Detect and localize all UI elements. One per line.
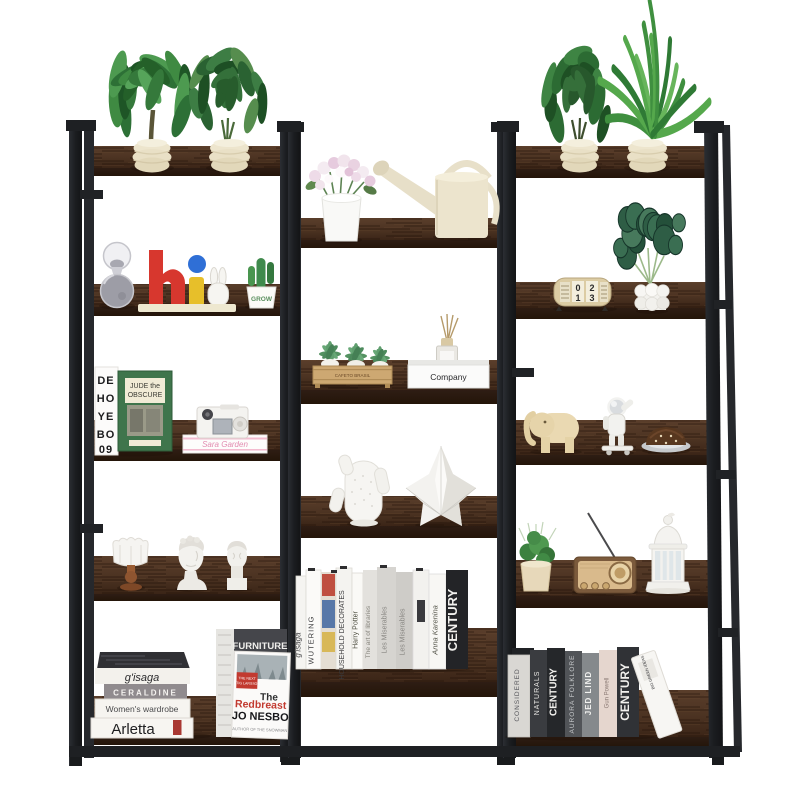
svg-text:CERALDINE: CERALDINE <box>113 689 178 698</box>
svg-text:g'isaga: g'isaga <box>125 672 160 684</box>
svg-text:CONSIDERED: CONSIDERED <box>514 668 521 721</box>
svg-text:1: 1 <box>575 293 580 303</box>
svg-text:JO NESBO: JO NESBO <box>232 710 290 724</box>
svg-text:BO: BO <box>97 429 116 441</box>
svg-text:JED LIND: JED LIND <box>584 671 593 715</box>
svg-text:Sara Garden: Sara Garden <box>202 440 248 449</box>
svg-text:The art of libraries: The art of libraries <box>365 605 372 658</box>
svg-text:Anna Karenina: Anna Karenina <box>431 605 440 656</box>
svg-text:HOUSEHOLD DECORATES: HOUSEHOLD DECORATES <box>339 590 346 680</box>
svg-text:AURORA FOLKLORE: AURORA FOLKLORE <box>569 655 576 734</box>
svg-text:HO: HO <box>97 393 116 405</box>
svg-text:g'isaga: g'isaga <box>294 632 303 658</box>
svg-text:3: 3 <box>589 293 594 303</box>
svg-text:Les Miserables: Les Miserables <box>400 608 407 656</box>
svg-text:YE: YE <box>98 411 115 423</box>
svg-text:Women's wardrobe: Women's wardrobe <box>106 704 179 714</box>
svg-text:Les Miserables: Les Miserables <box>382 606 389 654</box>
svg-text:THE NEXT: THE NEXT <box>238 676 256 681</box>
svg-text:CENTURY: CENTURY <box>445 588 460 651</box>
svg-text:0: 0 <box>575 283 580 293</box>
svg-text:GROW: GROW <box>251 296 273 303</box>
svg-text:09: 09 <box>99 444 113 456</box>
svg-text:JUDE the: JUDE the <box>130 383 160 390</box>
svg-text:CENTURY: CENTURY <box>549 668 560 716</box>
svg-text:CAFETO BRASIL: CAFETO BRASIL <box>335 373 371 378</box>
svg-text:DE: DE <box>97 375 114 387</box>
svg-text:Arletta: Arletta <box>111 721 155 738</box>
svg-text:FURNITURE: FURNITURE <box>233 641 288 652</box>
svg-text:Gun Powell: Gun Powell <box>605 678 611 709</box>
svg-text:OBSCURE: OBSCURE <box>128 392 163 399</box>
svg-text:Harry Potter: Harry Potter <box>353 610 360 648</box>
svg-text:Company: Company <box>430 372 467 382</box>
svg-text:WUTERING: WUTERING <box>307 616 316 665</box>
svg-text:2: 2 <box>589 283 594 293</box>
svg-text:CENTURY: CENTURY <box>618 663 632 721</box>
svg-text:NATURALS: NATURALS <box>534 671 541 716</box>
